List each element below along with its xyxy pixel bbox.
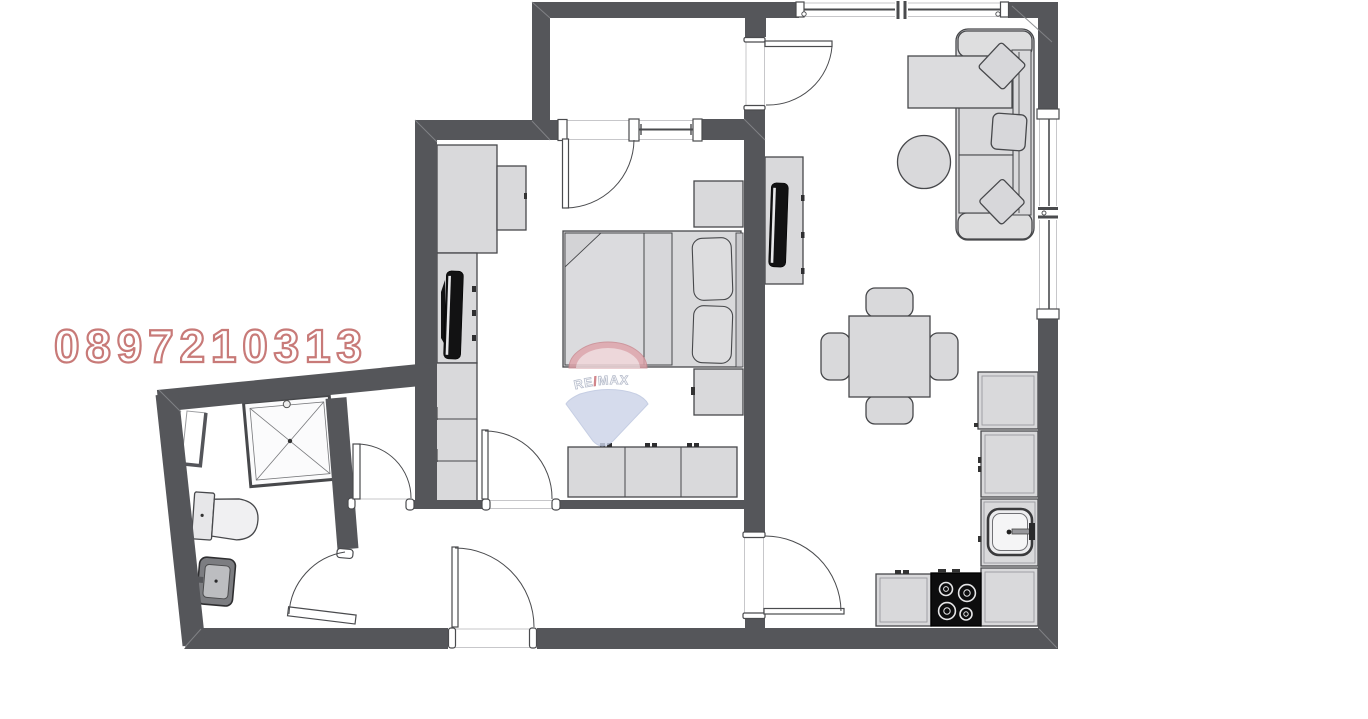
svg-text:0897210313: 0897210313	[54, 320, 362, 372]
